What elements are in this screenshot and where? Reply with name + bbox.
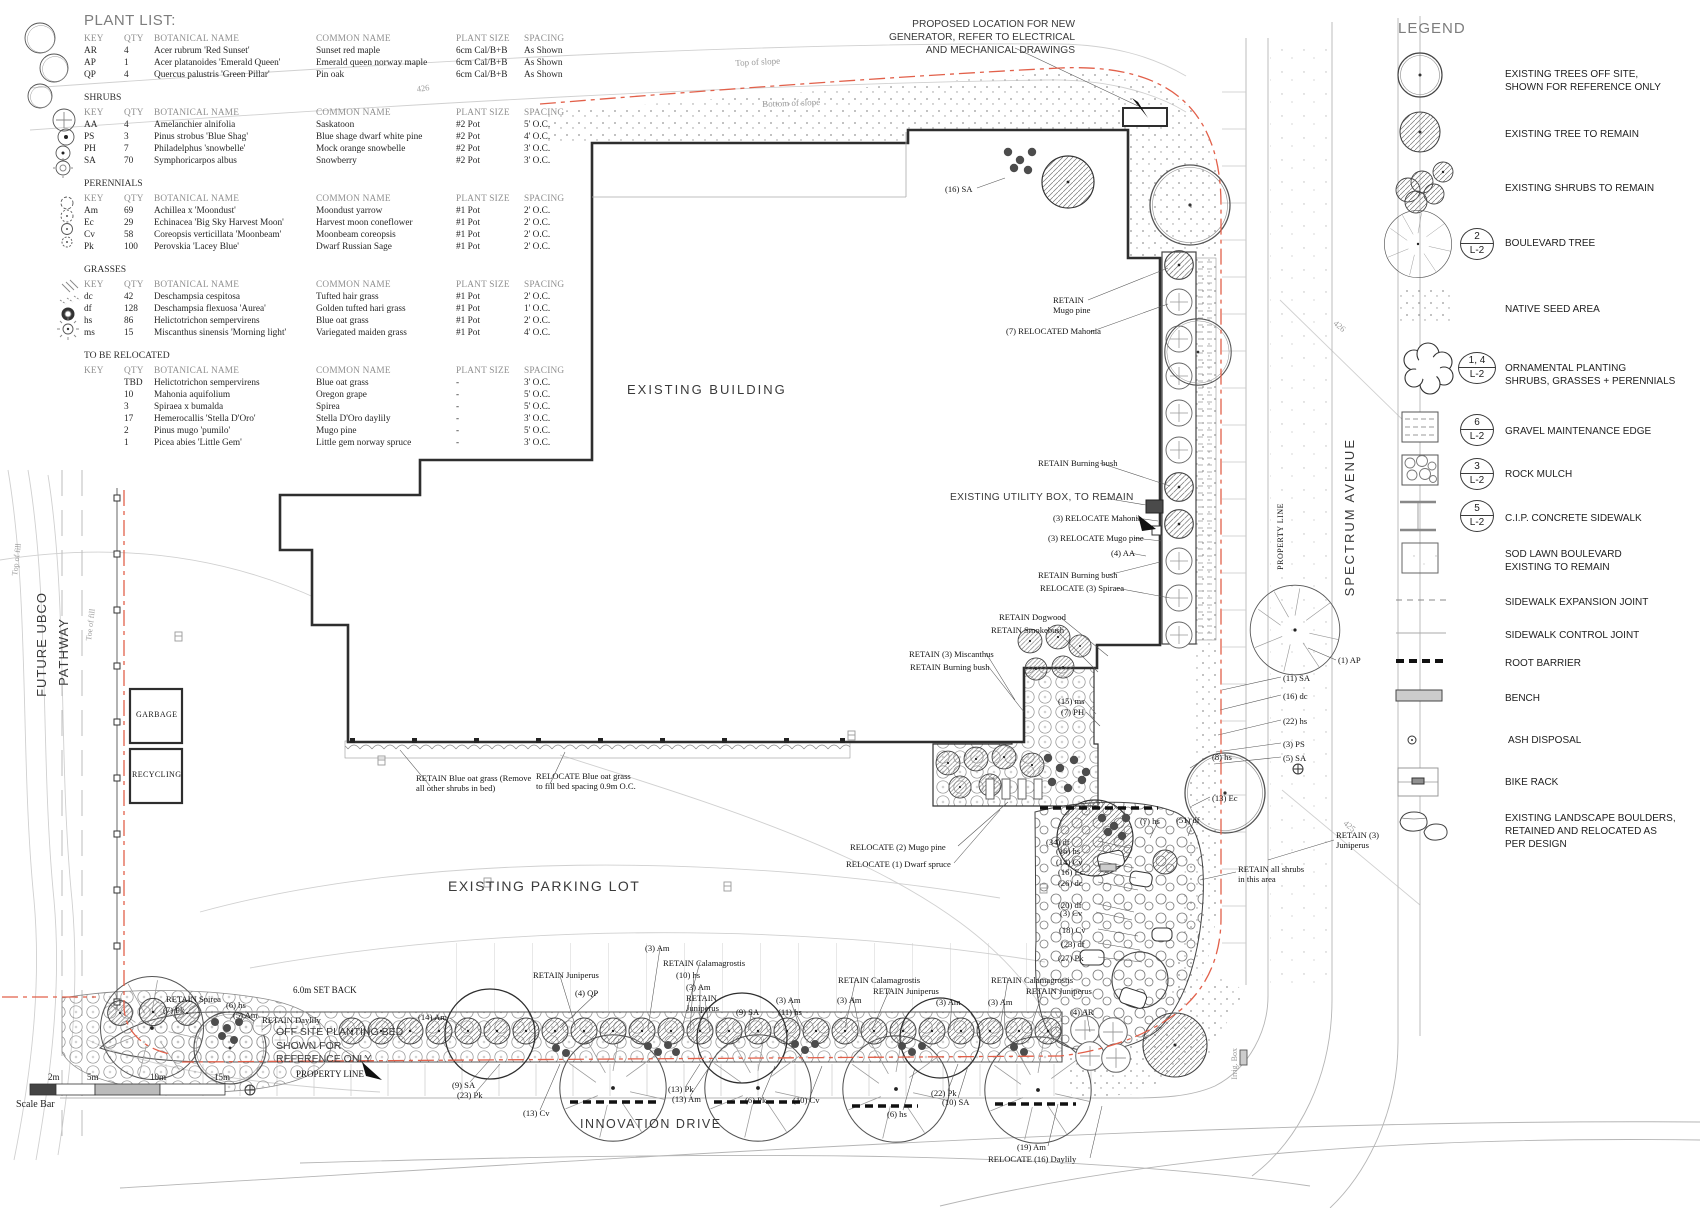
plant-cell: 2' O.C. (524, 241, 584, 253)
col-common: COMMON NAME (316, 365, 456, 377)
plan-annotation: RETAIN Burning bush (910, 662, 990, 672)
plant-row: PH7Philadelphus 'snowbelle'Mock orange s… (84, 143, 584, 155)
callout-number: 1, 4 (1459, 353, 1495, 368)
legend-item-label: SIDEWALK CONTROL JOINT (1505, 629, 1701, 642)
west-fence (114, 488, 120, 1010)
plant-cell: 3' O.C. (524, 437, 584, 449)
plan-annotation: (26) dc (1058, 878, 1083, 888)
plan-annotation: (13) Pk (668, 1084, 694, 1094)
legend-native-seed-icon (1396, 288, 1450, 322)
plan-annotation: (11) SA (1283, 673, 1310, 683)
callout-number: 2 (1461, 229, 1493, 244)
scale-bar-label: Scale Bar (16, 1099, 55, 1110)
site-plan-sheet: PLANT LIST: KEYQTYBOTANICAL NAMECOMMON N… (0, 0, 1701, 1208)
plant-cell: Hemerocallis 'Stella D'Oro' (154, 413, 316, 425)
legend-symbols (1384, 53, 1453, 840)
legend-item-label: EXISTING TREES OFF SITE, SHOWN FOR REFER… (1505, 68, 1701, 94)
legend-item-label: EXISTING TREE TO REMAIN (1505, 128, 1701, 141)
legend-callout: 5L-2 (1460, 500, 1494, 532)
plant-row: Am69Achillea x 'Moondust'Moondust yarrow… (84, 205, 584, 217)
plan-annotation: RETAIN Mugo pine (1053, 295, 1090, 315)
plant-row: QP4Quercus palustris 'Green Pillar'Pin o… (84, 69, 584, 81)
plan-annotation: (5) SA (1283, 753, 1306, 763)
plan-annotation: RELOCATE (16) Daylily (988, 1154, 1076, 1164)
legend-callout: 3L-2 (1460, 458, 1494, 490)
plan-annotation: (3) Am (776, 995, 801, 1005)
plant-cell: Moondust yarrow (316, 205, 456, 217)
plan-annotation: RELOCATE (1) Dwarf spruce (846, 859, 951, 869)
plant-cell: 2' O.C. (524, 229, 584, 241)
col-size: PLANT SIZE (456, 193, 524, 205)
plant-cell: Blue shage dwarf white pine (316, 131, 456, 143)
plant-cell: Stella D'Oro daylily (316, 413, 456, 425)
plant-cell: Philadelphus 'snowbelle' (154, 143, 316, 155)
legend-item-label: GRAVEL MAINTENANCE EDGE (1505, 425, 1701, 438)
plant-cell: 2' O.C. (524, 291, 584, 303)
callout-sheet: L-2 (1461, 244, 1493, 258)
col-size: PLANT SIZE (456, 33, 524, 45)
col-spacing: SPACING (524, 279, 584, 291)
plant-cell: #1 Pot (456, 229, 524, 241)
plant-list-relocated-table: KEYQTYBOTANICAL NAMECOMMON NAMEPLANT SIZ… (84, 365, 584, 449)
plant-row: Cv58Coreopsis verticillata 'Moonbeam'Moo… (84, 229, 584, 241)
recycling-label: RECYCLING (132, 770, 181, 779)
plant-cell: 5' O.C. (524, 401, 584, 413)
plan-annotation: (4) AR (1070, 1007, 1094, 1017)
plant-cell: Saskatoon (316, 119, 456, 131)
plant-cell: Deschampsia cespitosa (154, 291, 316, 303)
plant-row: AA4Amelanchier alnifoliaSaskatoon#2 Pot5… (84, 119, 584, 131)
contour-426-label: 426 (416, 82, 430, 94)
col-botanical: BOTANICAL NAME (154, 365, 316, 377)
plant-row: Pk100Perovskia 'Lacey Blue'Dwarf Russian… (84, 241, 584, 253)
plant-cell: 4' O.C. (524, 327, 584, 339)
col-botanical: BOTANICAL NAME (154, 107, 316, 119)
plan-annotation: RETAIN (3) Miscanthus (909, 649, 994, 659)
callout-number: 6 (1461, 415, 1493, 430)
plant-cell: 3 (124, 401, 154, 413)
plant-cell: Mock orange snowbelle (316, 143, 456, 155)
plan-annotation: RETAIN Calamagrostis (663, 958, 745, 968)
plant-row: SA70Symphoricarpos albusSnowberry#2 Pot3… (84, 155, 584, 167)
plan-annotation: (3) Am (837, 995, 862, 1005)
plan-annotation: RELOCATE (2) Mugo pine (850, 842, 946, 852)
plan-annotation: RELOCATE Blue oat grass to fill bed spac… (536, 771, 636, 791)
plan-annotation: (18) Cv (1059, 925, 1086, 935)
plan-annotation: (3) Am (645, 943, 670, 953)
plant-cell: Pin oak (316, 69, 456, 81)
plant-cell: 2' O.C. (524, 217, 584, 229)
plan-annotation: (14) Cv (1056, 857, 1083, 867)
plant-cell: As Shown (524, 45, 584, 57)
plant-cell: 86 (124, 315, 154, 327)
plant-cell: - (456, 413, 524, 425)
plan-annotation: (16) Ec (1058, 867, 1084, 877)
plan-annotation: (51) df (1176, 815, 1200, 825)
plant-cell: - (456, 389, 524, 401)
legend-boulders-icon (1400, 812, 1447, 840)
plant-cell: 1 (124, 437, 154, 449)
legend-callout: 6L-2 (1460, 414, 1494, 446)
plan-annotation: (4) QP (575, 988, 598, 998)
plant-row: 17Hemerocallis 'Stella D'Oro'Stella D'Or… (84, 413, 584, 425)
plant-cell: Mugo pine (316, 425, 456, 437)
plant-cell: Pinus strobus 'Blue Shag' (154, 131, 316, 143)
plan-annotation: RETAIN Burning bush (1038, 458, 1118, 468)
plan-annotation: (1) AP (1338, 655, 1361, 665)
plant-row: df128Deschampsia flexuosa 'Aurea'Golden … (84, 303, 584, 315)
col-qty: QTY (124, 193, 154, 205)
plan-annotation: (6) Pk (745, 1095, 766, 1105)
plan-annotation: (3) RELOCATE Mugo pine (1048, 533, 1144, 543)
plant-cell: 6cm Cal/B+B (456, 45, 524, 57)
legend-ash-disposal-icon (1408, 736, 1416, 744)
plant-cell: Moonbeam coreopsis (316, 229, 456, 241)
plant-cell: Blue oat grass (316, 315, 456, 327)
plant-cell: Variegated maiden grass (316, 327, 456, 339)
plan-annotation: (13) Ec (1212, 793, 1238, 803)
plan-annotation: (8) hs (1212, 752, 1232, 762)
col-qty: QTY (124, 279, 154, 291)
plan-annotation: RETAIN Dogwood (999, 612, 1066, 622)
plant-row: 2Pinus mugo 'pumilo'Mugo pine-5' O.C. (84, 425, 584, 437)
plant-cell: 17 (124, 413, 154, 425)
plant-cell: #1 Pot (456, 303, 524, 315)
plant-cell: 70 (124, 155, 154, 167)
scale-tick: 10m (150, 1072, 166, 1082)
plant-cell: 4 (124, 45, 154, 57)
plan-annotation: (19) Am (1017, 1142, 1046, 1152)
setback-label: 6.0m SET BACK (293, 985, 357, 996)
plan-annotation: (14) Am (418, 1012, 447, 1022)
plant-list-perennials-table: KEYQTYBOTANICAL NAMECOMMON NAMEPLANT SIZ… (84, 193, 584, 253)
col-spacing: SPACING (524, 107, 584, 119)
plant-cell: 15 (124, 327, 154, 339)
plant-cell: 42 (124, 291, 154, 303)
plant-row: AR4Acer rubrum 'Red Sunset'Sunset red ma… (84, 45, 584, 57)
legend-bike-rack-icon (1398, 768, 1438, 796)
col-spacing: SPACING (524, 33, 584, 45)
col-botanical: BOTANICAL NAME (154, 33, 316, 45)
plant-row: 3Spiraea x bumaldaSpirea-5' O.C. (84, 401, 584, 413)
plant-list-trees-table: KEYQTYBOTANICAL NAMECOMMON NAMEPLANT SIZ… (84, 33, 584, 81)
col-size: PLANT SIZE (456, 365, 524, 377)
plant-cell: 1 (124, 57, 154, 69)
callout-sheet: L-2 (1461, 430, 1493, 444)
plant-row: 1Picea abies 'Little Gem'Little gem norw… (84, 437, 584, 449)
scale-bar (30, 1084, 225, 1095)
innovation-drive-label: INNOVATION DRIVE (580, 1117, 722, 1131)
plant-cell: Picea abies 'Little Gem' (154, 437, 316, 449)
plan-annotation: RELOCATE (3) Spiraea (1040, 583, 1124, 593)
plant-row: ms15Miscanthus sinensis 'Morning light'V… (84, 327, 584, 339)
plant-row: hs86Helictotrichon sempervirensBlue oat … (84, 315, 584, 327)
generator-note: PROPOSED LOCATION FOR NEW GENERATOR, REF… (875, 19, 1075, 57)
plant-cell: 58 (124, 229, 154, 241)
plant-row: 10Mahonia aquifoliumOregon grape-5' O.C. (84, 389, 584, 401)
pathway-label: PATHWAY (56, 618, 71, 686)
legend-boulevard-tree-icon (1384, 210, 1451, 277)
plan-annotation: (27) Pk (1058, 953, 1084, 963)
legend-title: LEGEND (1398, 20, 1466, 37)
plant-cell: 2 (124, 425, 154, 437)
plan-annotation: (3) RELOCATE Mahonia (1053, 513, 1142, 523)
plan-annotation: RETAIN Burning bush (1038, 570, 1118, 580)
col-qty: QTY (124, 33, 154, 45)
gravel-maintenance-strip (1196, 258, 1216, 640)
plan-annotation: RETAIN all shrubs in this area (1238, 864, 1304, 884)
utility-box-note: EXISTING UTILITY BOX, TO REMAIN (950, 492, 1134, 503)
plan-annotation: RETAIN Juniperus (873, 986, 939, 996)
garbage-label: GARBAGE (136, 710, 177, 719)
parking-label: EXISTING PARKING LOT (448, 878, 640, 894)
plant-cell: #2 Pot (456, 155, 524, 167)
legend-shrubs-remain-icon (1396, 162, 1453, 213)
legend-callout: 2L-2 (1460, 228, 1494, 260)
plant-list: PLANT LIST: KEYQTYBOTANICAL NAMECOMMON N… (84, 12, 589, 449)
col-size: PLANT SIZE (456, 279, 524, 291)
col-common: COMMON NAME (316, 33, 456, 45)
callout-sheet: L-2 (1461, 516, 1493, 530)
plan-annotation: RETAIN (3) Juniperus (1336, 830, 1379, 850)
plan-annotation: (7) PH (1061, 707, 1084, 717)
generator-box (1123, 108, 1167, 126)
plant-cell: 5' O.C. (524, 389, 584, 401)
bottom-of-slope-label: Bottom of slope (762, 97, 820, 110)
plant-row: AP1Acer platanoides 'Emerald Queen'Emera… (84, 57, 584, 69)
plan-annotation: (16) SA (945, 184, 972, 194)
plant-cell: Spiraea x bumalda (154, 401, 316, 413)
plan-annotation: (7) RELOCATED Mahonia (1006, 326, 1101, 336)
plan-annotation: (9) SA (736, 1007, 759, 1017)
legend-gravel-icon (1402, 412, 1438, 442)
plant-cell: Coreopsis verticillata 'Moonbeam' (154, 229, 316, 241)
plant-cell: - (456, 437, 524, 449)
plant-cell: 2' O.C. (524, 205, 584, 217)
relocated-heading: TO BE RELOCATED (84, 350, 589, 361)
plant-cell: Tufted hair grass (316, 291, 456, 303)
plant-cell: 29 (124, 217, 154, 229)
plan-annotation: (3) Am (686, 982, 711, 992)
property-line-vertical-label: PROPERTY LINE (1276, 503, 1285, 570)
plan-annotation: (3) PS (1283, 739, 1305, 749)
plant-cell: Golden tufted hari grass (316, 303, 456, 315)
scale-tick: 15m (214, 1072, 230, 1082)
plant-cell: Miscanthus sinensis 'Morning light' (154, 327, 316, 339)
plant-cell: - (456, 401, 524, 413)
garbage-recycling-enclosures (130, 689, 182, 803)
legend-item-label: EXISTING LANDSCAPE BOULDERS, RETAINED AN… (1505, 812, 1701, 851)
plant-cell: Deschampsia flexuosa 'Aurea' (154, 303, 316, 315)
plant-cell: Oregon grape (316, 389, 456, 401)
plan-annotation: (13) Cv (523, 1108, 550, 1118)
legend-item-label: SOD LAWN BOULEVARD EXISTING TO REMAIN (1505, 548, 1701, 574)
plant-cell: #2 Pot (456, 119, 524, 131)
col-common: COMMON NAME (316, 193, 456, 205)
callout-sheet: L-2 (1459, 368, 1495, 382)
plant-cell: #2 Pot (456, 131, 524, 143)
plan-annotation: (6) hs (226, 1000, 246, 1010)
plant-cell: 4 (124, 119, 154, 131)
plan-annotation: (23) Pk (457, 1090, 483, 1100)
plan-annotation: (4) AA (1111, 548, 1135, 558)
plan-annotation: (3) Am (988, 997, 1013, 1007)
plant-row: PS3Pinus strobus 'Blue Shag'Blue shage d… (84, 131, 584, 143)
plant-cell: - (456, 425, 524, 437)
property-line-bottom-label: PROPERTY LINE (296, 1069, 364, 1080)
plant-cell: 5' O.C. (524, 425, 584, 437)
plant-cell (84, 437, 124, 449)
plant-cell: Pinus mugo 'pumilo' (154, 425, 316, 437)
plant-cell: As Shown (524, 57, 584, 69)
plant-cell: Symphoricarpos albus (154, 155, 316, 167)
plant-cell: 3' O.C. (524, 413, 584, 425)
plant-list-grasses-table: KEYQTYBOTANICAL NAMECOMMON NAMEPLANT SIZ… (84, 279, 584, 339)
plant-cell: 3' O.C. (524, 143, 584, 155)
plant-cell: Spirea (316, 401, 456, 413)
col-spacing: SPACING (524, 193, 584, 205)
plan-annotation: (10) SA (942, 1097, 969, 1107)
plant-cell: Snowberry (316, 155, 456, 167)
plant-row: TBDHelictotrichon sempervirensBlue oat g… (84, 377, 584, 389)
legend-item-label: SIDEWALK EXPANSION JOINT (1505, 596, 1701, 609)
plant-cell: #1 Pot (456, 315, 524, 327)
legend-item-label: C.I.P. CONCRETE SIDEWALK (1505, 512, 1701, 525)
plant-cell: As Shown (524, 69, 584, 81)
plant-cell: Acer rubrum 'Red Sunset' (154, 45, 316, 57)
scale-tick: 2m (48, 1072, 60, 1082)
legend-tree-remain-icon (1400, 112, 1440, 152)
plant-cell: Dwarf Russian Sage (316, 241, 456, 253)
perennials-heading: PERENNIALS (84, 178, 589, 189)
plant-row: Ec29Echinacea 'Big Sky Harvest Moon'Harv… (84, 217, 584, 229)
plant-cell: 4' O.C. (524, 131, 584, 143)
col-qty: QTY (124, 365, 154, 377)
plant-cell: Quercus palustris 'Green Pillar' (154, 69, 316, 81)
plan-annotation: RETAIN Blue oat grass (Remove all other … (416, 773, 531, 793)
plan-annotation: (13) Am (672, 1094, 701, 1104)
plan-annotation: (11) hs (778, 1007, 802, 1017)
plant-cell: 3' O.C. (524, 377, 584, 389)
plant-list-symbols (14, 16, 94, 436)
plant-cell: #1 Pot (456, 291, 524, 303)
plan-annotation: (15) ms (1058, 696, 1085, 706)
legend-callout: 1, 4L-2 (1458, 352, 1496, 384)
callout-number: 3 (1461, 459, 1493, 474)
plant-cell: Blue oat grass (316, 377, 456, 389)
legend-ornamental-icon (1404, 343, 1453, 394)
grasses-heading: GRASSES (84, 264, 589, 275)
legend-item-label: BOULEVARD TREE (1505, 237, 1701, 250)
legend-item-label: ASH DISPOSAL (1508, 734, 1701, 747)
shrubs-heading: SHRUBS (84, 92, 589, 103)
plan-annotation: (22) hs (1283, 716, 1307, 726)
plant-cell: 1' O.C. (524, 303, 584, 315)
plan-annotation: (23) df (1061, 939, 1085, 949)
col-common: COMMON NAME (316, 279, 456, 291)
plan-annotation: RETAIN Smokebush (991, 625, 1064, 635)
building-label: EXISTING BUILDING (627, 382, 787, 397)
plant-cell: 3 (124, 131, 154, 143)
legend-item-label: NATIVE SEED AREA (1505, 303, 1701, 316)
plant-cell: 7 (124, 143, 154, 155)
legend-item-label: BIKE RACK (1505, 776, 1701, 789)
col-spacing: SPACING (524, 365, 584, 377)
offsite-bed-note: OFF SITE PLANTING BED SHOWN FOR REFERENC… (276, 1026, 403, 1067)
plant-cell: Sunset red maple (316, 45, 456, 57)
spectrum-avenue-label: SPECTRUM AVENUE (1342, 438, 1357, 596)
south-building-bed (345, 741, 850, 758)
scale-tick: 5m (87, 1072, 99, 1082)
legend-item-label: EXISTING SHRUBS TO REMAIN (1505, 182, 1701, 195)
plant-cell: 2' O.C. (524, 315, 584, 327)
legend-item-label: ORNAMENTAL PLANTING SHRUBS, GRASSES + PE… (1505, 362, 1701, 388)
col-size: PLANT SIZE (456, 107, 524, 119)
plant-cell: #1 Pot (456, 217, 524, 229)
plant-cell: 100 (124, 241, 154, 253)
plant-row: dc42Deschampsia cespitosaTufted hair gra… (84, 291, 584, 303)
plan-annotation: (7) Pk (163, 1005, 184, 1015)
col-qty: QTY (124, 107, 154, 119)
plant-cell: 6cm Cal/B+B (456, 57, 524, 69)
plant-cell: 4 (124, 69, 154, 81)
plan-annotation: (22) Pk (931, 1088, 957, 1098)
plant-cell: Helictotrichon sempervirens (154, 315, 316, 327)
plant-cell: Amelanchier alnifolia (154, 119, 316, 131)
plant-cell: 10 (124, 389, 154, 401)
legend-rock-mulch-icon (1402, 455, 1438, 485)
plant-cell: #1 Pot (456, 205, 524, 217)
spectrum-sidewalk-joints (1222, 70, 1246, 958)
plan-annotation: RETAIN Juniperus (686, 993, 719, 1013)
plan-annotation: (3) Am (936, 997, 961, 1007)
plan-annotation: RETAIN Calamagrostis (991, 975, 1073, 985)
plan-annotation: (16) hs (1056, 846, 1080, 856)
plant-cell: #1 Pot (456, 327, 524, 339)
col-common: COMMON NAME (316, 107, 456, 119)
plan-annotation: RETAIN Daylily (262, 1015, 321, 1025)
future-ubco-label: FUTURE UBCO (34, 592, 49, 697)
plant-cell: Perovskia 'Lacey Blue' (154, 241, 316, 253)
plan-annotation: (9) SA (452, 1080, 475, 1090)
plant-cell: Helictotrichon sempervirens (154, 377, 316, 389)
plan-annotation: RETAIN Calamagrostis (838, 975, 920, 985)
callout-number: 5 (1461, 501, 1493, 516)
plan-annotation: (5) Am (233, 1010, 258, 1020)
plant-cell: Little gem norway spruce (316, 437, 456, 449)
plan-annotation: RETAIN Juniperus (533, 970, 599, 980)
plan-annotation: (10) hs (676, 970, 700, 980)
plant-cell: 3' O.C. (524, 155, 584, 167)
plant-list-title: PLANT LIST: (84, 12, 589, 29)
plant-cell: Achillea x 'Moondust' (154, 205, 316, 217)
plant-cell: 128 (124, 303, 154, 315)
plan-annotation: (7) hs (1140, 816, 1160, 826)
plant-cell: 69 (124, 205, 154, 217)
plant-cell: - (456, 377, 524, 389)
plant-cell: Emerald queen norway maple (316, 57, 456, 69)
plan-annotation: (6) hs (887, 1109, 907, 1119)
plant-cell: Echinacea 'Big Sky Harvest Moon' (154, 217, 316, 229)
plant-cell: 5' O.C. (524, 119, 584, 131)
plant-cell: #2 Pot (456, 143, 524, 155)
plan-annotation: (3) Cv (1060, 908, 1082, 918)
irrig-box-label: Irrig. Box (1230, 1048, 1239, 1080)
plant-cell: #1 Pot (456, 241, 524, 253)
plant-cell: Harvest moon coneflower (316, 217, 456, 229)
legend-item-label: ROCK MULCH (1505, 468, 1701, 481)
plan-annotation: (10) Cv (793, 1095, 820, 1105)
